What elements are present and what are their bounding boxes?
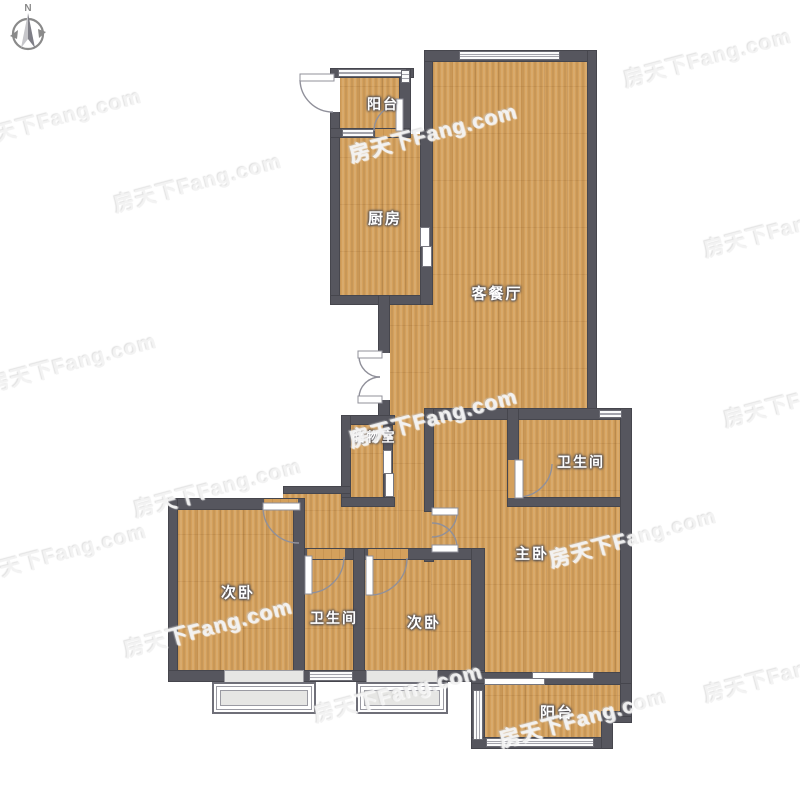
- door-arc: [359, 377, 380, 398]
- door-leaf: [305, 556, 312, 594]
- room-label-bedroom-middle: 次卧: [407, 612, 441, 633]
- room-label-balcony-top: 阳台: [367, 94, 399, 114]
- door-leaf: [358, 396, 382, 403]
- floor-plan: N 阳台 厨房 客餐厅 储物室 卫生间 主卧 次卧 卫生间 次卧 阳台 房天下F…: [0, 0, 800, 800]
- room-label-living-dining: 客餐厅: [471, 283, 522, 304]
- room-label-bedroom-left: 次卧: [221, 582, 255, 603]
- door-swing-layer: [0, 0, 800, 800]
- room-label-kitchen: 厨房: [368, 208, 402, 229]
- door-arc: [519, 464, 552, 497]
- room-label-master-bedroom: 主卧: [515, 543, 549, 564]
- compass-icon: N: [4, 0, 52, 62]
- north-label: N: [24, 3, 31, 14]
- door-leaf: [358, 351, 382, 358]
- door-arc: [432, 512, 457, 537]
- door-leaf: [515, 460, 523, 498]
- door-arc: [359, 356, 380, 377]
- room-label-bathroom-master: 卫生间: [557, 452, 605, 472]
- door-leaf: [432, 545, 458, 552]
- door-arc: [300, 80, 333, 112]
- door-leaf: [366, 556, 373, 595]
- door-arc: [432, 523, 457, 548]
- door-leaf: [263, 503, 300, 510]
- door-leaf: [300, 74, 334, 81]
- room-label-storage: 储物室: [351, 427, 396, 446]
- door-arc: [370, 558, 407, 595]
- room-label-bathroom-shared: 卫生间: [310, 608, 358, 628]
- door-leaf: [432, 508, 458, 515]
- door-arc: [308, 557, 344, 593]
- door-arc: [263, 507, 299, 543]
- room-label-balcony-bottom: 阳台: [540, 702, 574, 723]
